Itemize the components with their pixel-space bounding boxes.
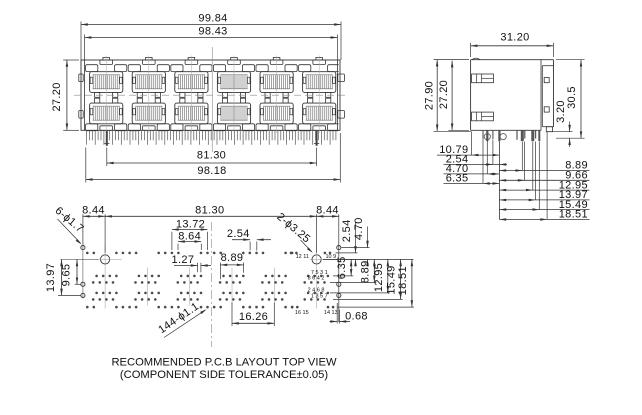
svg-text:8.44: 8.44	[316, 205, 339, 217]
svg-text:8.89: 8.89	[359, 260, 371, 283]
svg-text:1 3 5 7: 1 3 5 7	[311, 293, 328, 299]
svg-text:27.20: 27.20	[51, 82, 63, 111]
svg-text:81.30: 81.30	[195, 205, 224, 217]
svg-text:10 9: 10 9	[325, 254, 336, 260]
svg-text:13.72: 13.72	[176, 218, 205, 230]
svg-text:31.20: 31.20	[500, 32, 529, 44]
svg-text:98.43: 98.43	[198, 26, 227, 38]
svg-text:1.27: 1.27	[171, 254, 194, 266]
svg-text:16 15: 16 15	[295, 310, 309, 316]
svg-text:6.35: 6.35	[446, 173, 469, 185]
svg-text:12 11: 12 11	[296, 254, 309, 260]
svg-text:RECOMMENDED P.C.B LAYOUT TOP V: RECOMMENDED P.C.B LAYOUT TOP VIEW	[111, 356, 336, 368]
svg-text:13.97: 13.97	[45, 263, 57, 292]
svg-text:27.20: 27.20	[438, 80, 450, 109]
svg-text:8.64: 8.64	[178, 230, 201, 242]
svg-text:12.95: 12.95	[373, 263, 385, 292]
svg-text:4.70: 4.70	[353, 217, 365, 240]
svg-text:8.44: 8.44	[82, 205, 105, 217]
svg-text:0.68: 0.68	[345, 311, 368, 323]
svg-text:8.89: 8.89	[221, 252, 244, 264]
svg-text:2.54: 2.54	[341, 219, 353, 242]
svg-text:144-ϕ1.1: 144-ϕ1.1	[156, 300, 201, 336]
svg-text:18.51: 18.51	[559, 209, 588, 221]
svg-text:30.5: 30.5	[566, 86, 578, 109]
svg-text:15.49: 15.49	[386, 265, 398, 294]
svg-text:8 6 4 2: 8 6 4 2	[308, 276, 325, 282]
svg-text:9.65: 9.65	[61, 264, 73, 287]
svg-text:99.84: 99.84	[198, 13, 227, 25]
svg-text:14 13: 14 13	[324, 310, 338, 316]
svg-text:81.30: 81.30	[197, 150, 226, 162]
svg-text:6-ϕ1.7: 6-ϕ1.7	[53, 205, 86, 236]
svg-text:27.90: 27.90	[423, 81, 435, 110]
svg-text:16.26: 16.26	[239, 311, 268, 323]
svg-text:98.18: 98.18	[197, 165, 226, 177]
svg-text:(COMPONENT SIDE TOLERANCE±0.05: (COMPONENT SIDE TOLERANCE±0.05)	[120, 369, 328, 381]
svg-text:18.51: 18.51	[397, 266, 409, 295]
svg-text:6.35: 6.35	[336, 256, 348, 279]
svg-text:2.54: 2.54	[227, 228, 250, 240]
